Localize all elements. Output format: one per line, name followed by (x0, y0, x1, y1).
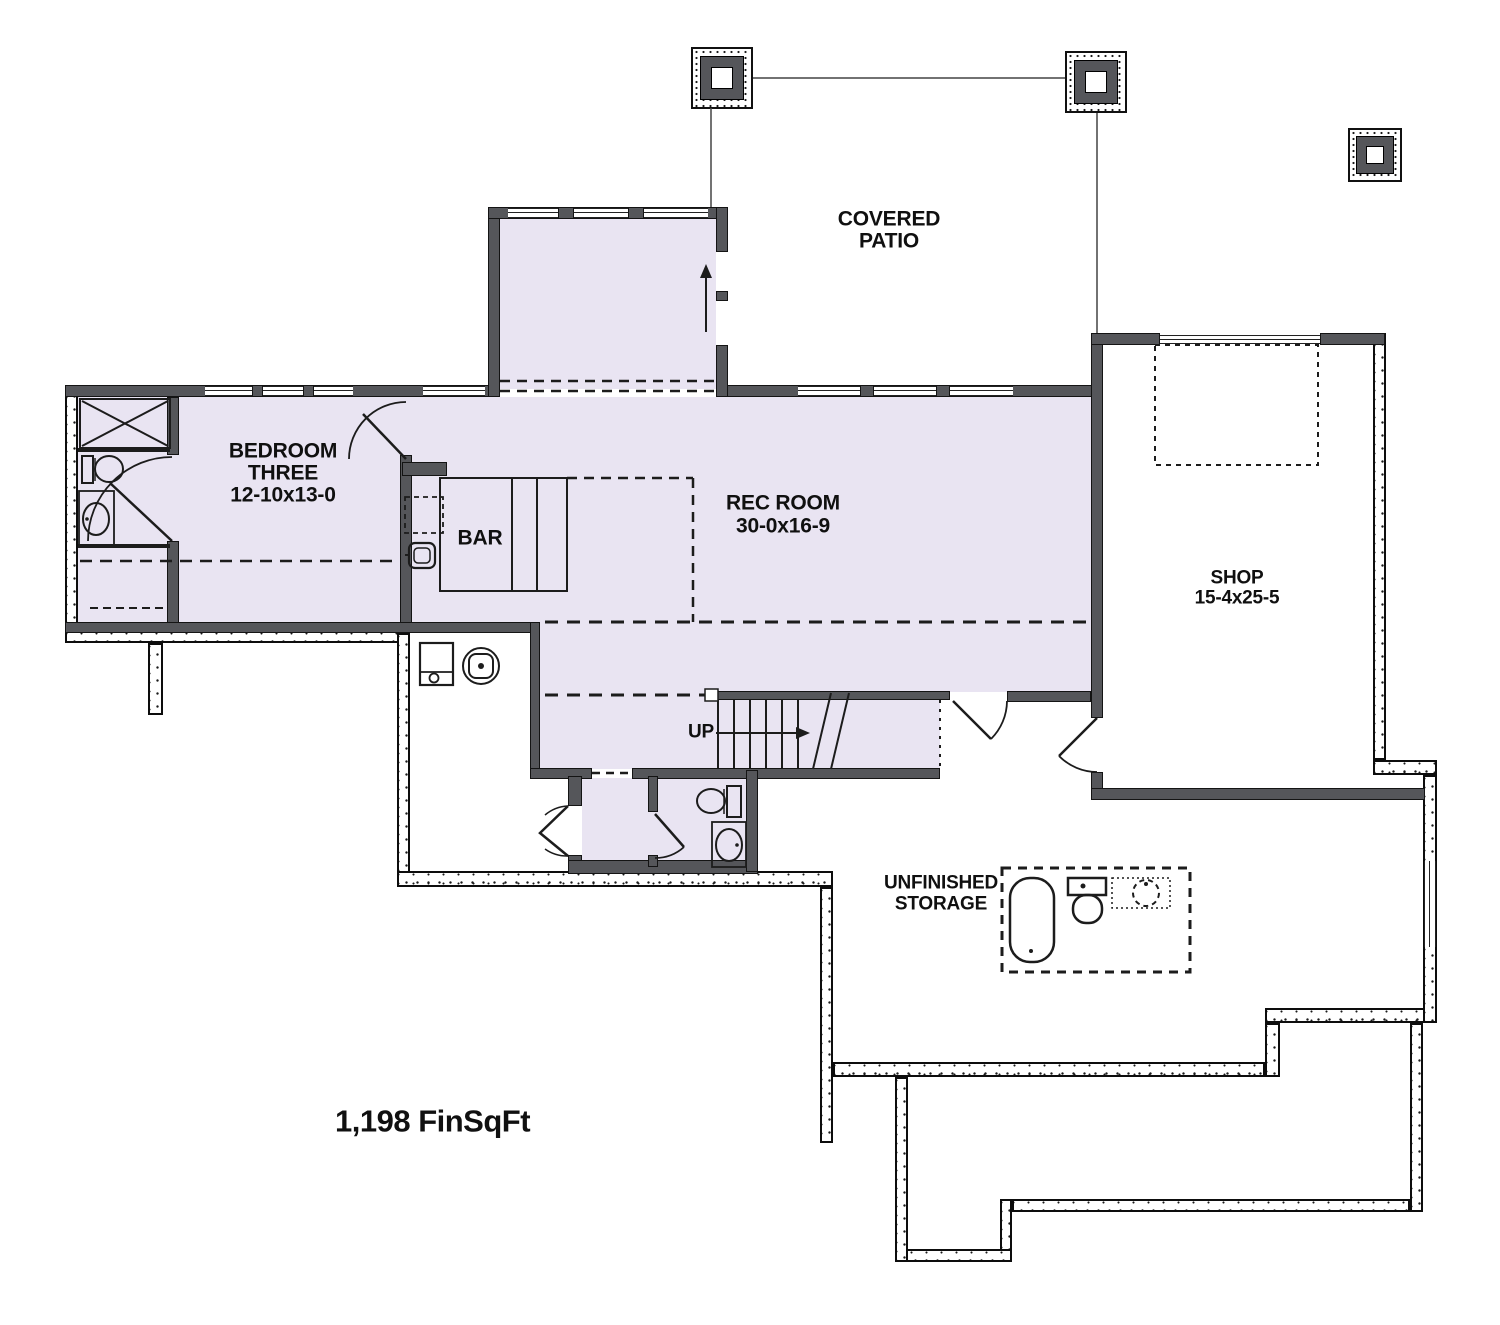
sink-icon-bath2 (712, 822, 746, 867)
label-bar: BAR (458, 528, 503, 549)
label-rec-room: REC ROOM (726, 493, 840, 514)
stair-treads (718, 693, 849, 769)
bar-overhang-dashed (567, 478, 693, 622)
patio-beam-lines (711, 78, 1097, 333)
plan-linework (0, 0, 1500, 1325)
future-tub-icon (1010, 878, 1054, 962)
door-bedroom (349, 402, 406, 459)
furnace-icon (420, 643, 453, 685)
label-storage-line2: STORAGE (895, 895, 987, 914)
label-covered-patio-line2: PATIO (859, 231, 919, 252)
future-sink-icon (1112, 878, 1170, 908)
door-recroom-storage (953, 701, 1007, 739)
water-heater-icon (463, 648, 499, 684)
door-bath2 (655, 814, 684, 858)
shop-dashed-footprint (1155, 345, 1318, 465)
label-bedroom-line2: THREE (248, 463, 318, 484)
door-bath1 (88, 457, 172, 541)
bar-sink-icon (405, 543, 435, 568)
label-storage-line1: UNFINISHED (884, 874, 998, 893)
toilet-icon-bath1 (82, 456, 123, 483)
toilet-icon-bath2 (697, 786, 741, 817)
stair-up-arrow-icon (716, 727, 810, 739)
label-up: UP (688, 723, 714, 742)
label-shop: SHOP (1210, 569, 1263, 588)
door-shop (1059, 718, 1097, 772)
bar-cabinet-dashed (405, 497, 443, 533)
door-vestibule-west (540, 806, 568, 856)
label-bedroom-line1: BEDROOM (229, 441, 337, 462)
label-covered-patio-line1: COVERED (838, 209, 940, 230)
label-finished-sqft: 1,198 FinSqFt (335, 1106, 530, 1137)
label-bedroom-dims: 12-10x13-0 (230, 485, 335, 506)
stair-newel (705, 689, 718, 701)
patio-door-arrow-icon (700, 264, 712, 332)
dashed-open-boundaries (500, 381, 716, 391)
label-rec-room-dims: 30-0x16-9 (736, 516, 830, 537)
label-shop-dims: 15-4x25-5 (1195, 589, 1280, 608)
floor-plan: COVERED PATIO BEDROOM THREE 12-10x13-0 R… (0, 0, 1500, 1325)
sink-icon-bath1 (79, 491, 114, 546)
shower-icon (80, 399, 170, 448)
future-toilet-icon (1068, 878, 1106, 923)
